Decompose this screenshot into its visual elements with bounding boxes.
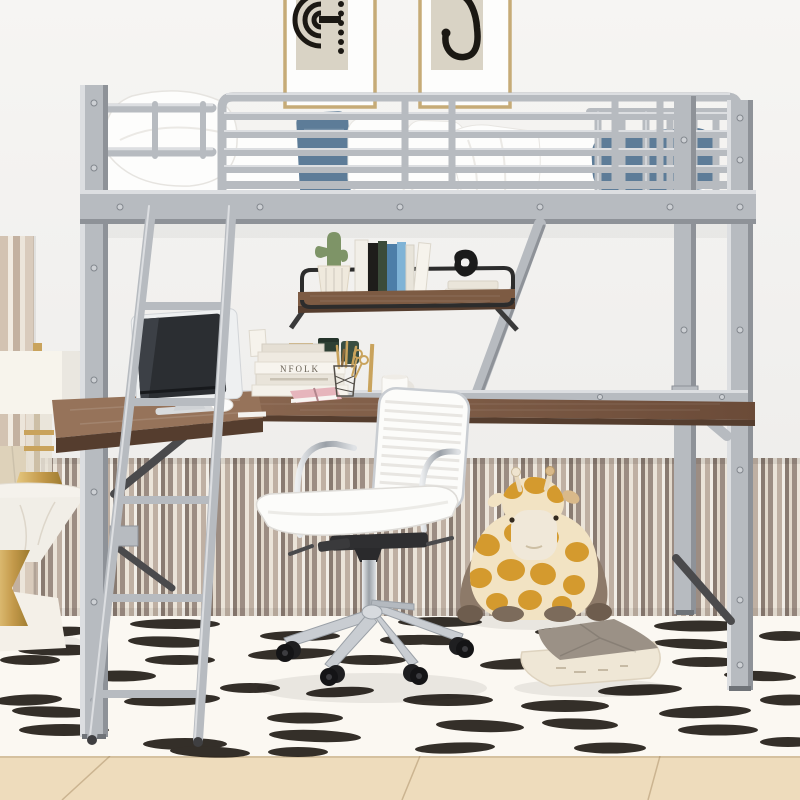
shelf-board [298,289,515,313]
book-spine-text: NFOLK [280,364,320,374]
rear-right-post [672,96,698,615]
desk-paper [238,412,266,418]
book-row [355,240,431,298]
wood-floor [0,754,800,800]
giraffe-muzzle [511,510,557,560]
giraffe-foot-right [544,606,576,622]
product-photo-stage: NFOLK [0,0,800,800]
giraffe-hoof-left [457,605,483,623]
wall-art-right-frame [420,0,510,107]
giraffe-eye-left [509,517,514,522]
chair-shadow [257,673,487,703]
scene-illustration: NFOLK [0,0,800,800]
side-beam [80,190,756,224]
giraffe-hoof-right [586,603,612,621]
giraffe-eye-right [553,515,558,520]
wall-art-left-frame [285,0,375,107]
giraffe-foot-left [492,606,524,622]
